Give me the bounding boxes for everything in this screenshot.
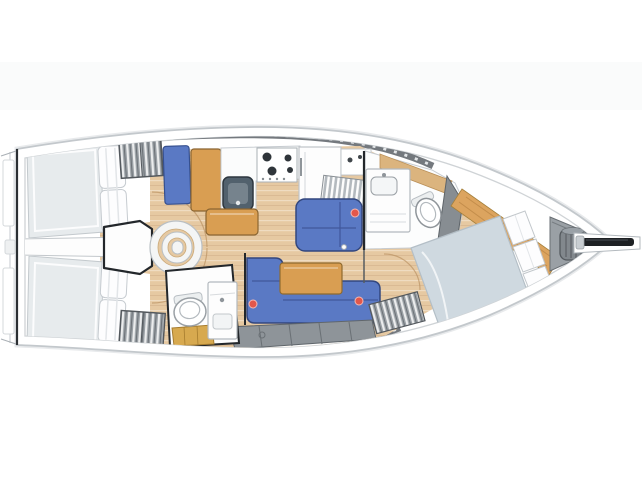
anchor-roller [582, 238, 634, 246]
engine-compartment-strip [20, 238, 105, 257]
saloon-settee-starboard [296, 199, 362, 251]
platform-step [3, 160, 14, 226]
bowsprit [574, 233, 640, 253]
aft-cabin-starboard [27, 143, 128, 238]
galley-island [206, 209, 258, 235]
vanity-sink [208, 282, 237, 339]
reading-light [351, 209, 359, 217]
mattress [27, 143, 104, 238]
sink [223, 177, 253, 210]
stove [257, 148, 297, 182]
wood-locker [191, 149, 221, 211]
page-band [0, 62, 642, 110]
reading-light [355, 297, 363, 305]
aft-head [166, 265, 239, 347]
platform-step [3, 268, 14, 334]
yacht-layout-diagram [0, 0, 642, 481]
reading-light [249, 300, 257, 308]
saloon-table [280, 263, 342, 294]
vanity-sink [366, 169, 410, 232]
engine-box [104, 221, 152, 274]
nav-seat [163, 146, 191, 205]
layout-svg [0, 0, 642, 481]
white-dot [342, 245, 347, 250]
interior [20, 128, 603, 355]
companionway-steps [104, 221, 202, 274]
